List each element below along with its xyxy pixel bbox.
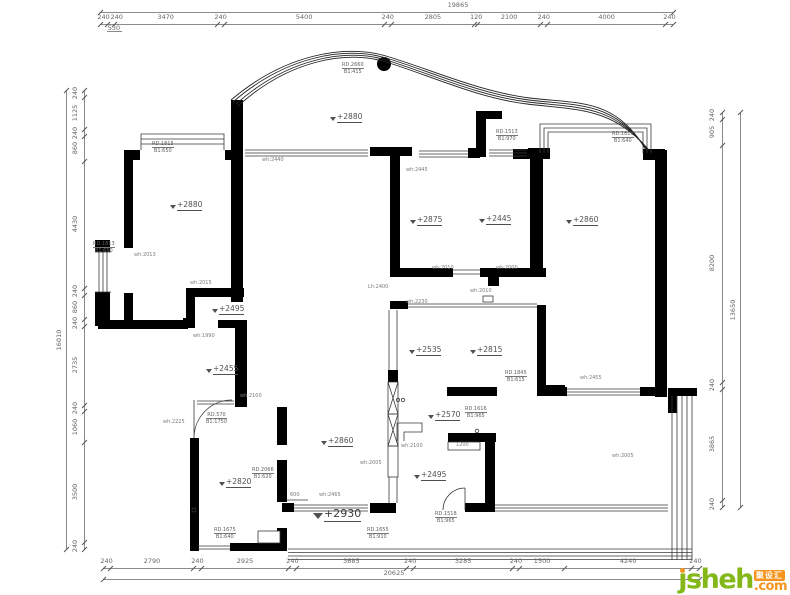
tag-sill: B1:415 (342, 69, 364, 75)
level-triangle-icon (330, 117, 336, 121)
level-value: +2930 (324, 507, 361, 522)
height-note: 1200 (456, 442, 469, 448)
tag-sill: B1:965 (435, 518, 457, 524)
brand-word: ȷsheh (678, 564, 753, 595)
level-label: +2495 (414, 470, 446, 479)
level-triangle-icon (313, 513, 323, 519)
height-note: wh:2440 (262, 157, 284, 163)
tag-code: RD.2660 (342, 62, 364, 69)
tag-code: RD.1513 (496, 129, 518, 136)
level-triangle-icon (219, 482, 225, 486)
level-value: +2880 (337, 112, 362, 123)
level-triangle-icon (428, 415, 434, 419)
height-note: 600 (290, 492, 300, 498)
opening-tag: RD.1513B1:970 (496, 129, 518, 142)
tag-sill: B1:965 (465, 413, 487, 419)
opening-tag: RD.1655B1:910 (367, 527, 389, 540)
height-note: wh:2225 (163, 419, 185, 425)
height-note: wh:2100 (240, 393, 262, 399)
height-note: wh:2010 (432, 265, 454, 271)
opening-tag: RD.570B1:1750 (206, 412, 227, 425)
tag-sill: B1:640 (612, 138, 634, 144)
tag-sill: B1:650 (152, 148, 174, 154)
level-triangle-icon (414, 475, 420, 479)
opening-tag: RD.1518B1:965 (435, 511, 457, 524)
height-note: Lh:2400 (368, 284, 388, 290)
level-label: +2860 (566, 215, 598, 224)
height-note: wh:2230 (406, 299, 428, 305)
tag-code: RD.1813 (93, 241, 115, 248)
tag-sill: B1:1750 (206, 419, 227, 425)
level-label: +2930 (313, 507, 361, 520)
level-label: +2815 (470, 345, 502, 354)
height-note: wh:2455 (580, 375, 602, 381)
level-label: +2880 (170, 200, 202, 209)
level-triangle-icon (212, 309, 218, 313)
opening-tag: RD.2660B1:415 (342, 62, 364, 75)
level-label: +2820 (219, 477, 251, 486)
opening-tag: RD.2066B1:620 (252, 467, 274, 480)
height-note: wh:2100 (401, 443, 423, 449)
tag-code: RD.1815 (152, 141, 174, 148)
level-triangle-icon (479, 219, 485, 223)
level-triangle-icon (410, 220, 416, 224)
level-value: +2860 (573, 215, 598, 226)
height-note: wh:2005 (360, 460, 382, 466)
level-label: +2495 (212, 304, 244, 313)
height-note: wh:2015 (190, 280, 212, 286)
level-value: +2860 (328, 436, 353, 447)
tag-code: RD.1845 (505, 370, 527, 377)
tag-sill: B1:970 (496, 136, 518, 142)
level-label: +2445 (479, 214, 511, 223)
height-note: wh:1990 (193, 333, 215, 339)
height-note: wh:2445 (406, 167, 428, 173)
level-value: +2820 (226, 477, 251, 488)
opening-tag: RD.1675B1:640 (214, 527, 236, 540)
height-note: wh:2005 (612, 453, 634, 459)
level-triangle-icon (409, 350, 415, 354)
tag-sill: B1:620 (252, 474, 274, 480)
opening-tag: RD.1845B1:615 (505, 370, 527, 383)
level-label: +2880 (330, 112, 362, 121)
tag-sill: B1:615 (505, 377, 527, 383)
level-label: +2535 (409, 345, 441, 354)
opening-tag: RD.1813B1:650 (93, 241, 115, 254)
level-value: +2880 (177, 200, 202, 211)
opening-tag: RD.1616B1:965 (465, 406, 487, 419)
tag-sill: B1:910 (367, 534, 389, 540)
level-value: +2495 (219, 304, 244, 315)
level-value: +2455 (213, 364, 238, 375)
level-value: +2815 (477, 345, 502, 356)
level-value: +2445 (486, 214, 511, 225)
plan-labels: +2880+2880+2875+2445+2860+2495+2535+2815… (0, 0, 790, 595)
level-triangle-icon (470, 350, 476, 354)
height-note: wh:2465 (319, 492, 341, 498)
floorplan-canvas: 2402403470240540024028051202100240400024… (0, 0, 790, 595)
level-triangle-icon (206, 369, 212, 373)
level-value: +2570 (435, 410, 460, 421)
level-label: +2875 (410, 215, 442, 224)
level-triangle-icon (170, 205, 176, 209)
brand-text: ȷsheh (678, 567, 753, 593)
tag-code: RD.2066 (252, 467, 274, 474)
level-value: +2875 (417, 215, 442, 226)
level-triangle-icon (321, 441, 327, 445)
height-note: wh:2000 (496, 265, 518, 271)
level-value: +2495 (421, 470, 446, 481)
opening-tag: RD.1813B1:640 (612, 131, 634, 144)
tag-code: RD.570 (206, 412, 227, 419)
height-note: wh:2013 (134, 252, 156, 258)
height-note: wh:2010 (470, 288, 492, 294)
brand-tld: .com (754, 581, 787, 593)
tag-code: RD.1675 (214, 527, 236, 534)
opening-tag: RD.1815B1:650 (152, 141, 174, 154)
tag-code: RD.1518 (435, 511, 457, 518)
brand-suffix-block: 聚设汇 .com (754, 570, 787, 593)
level-triangle-icon (566, 220, 572, 224)
tag-code: RD.1616 (465, 406, 487, 413)
watermark-logo: ȷsheh 聚设汇 .com (678, 561, 787, 593)
tag-code: RD.1655 (367, 527, 389, 534)
tag-sill: B1:640 (214, 534, 236, 540)
level-label: +2455 (206, 364, 238, 373)
level-label: +2860 (321, 436, 353, 445)
tag-code: RD.1813 (612, 131, 634, 138)
tag-sill: B1:650 (93, 248, 115, 254)
level-label: +2570 (428, 410, 460, 419)
level-value: +2535 (416, 345, 441, 356)
